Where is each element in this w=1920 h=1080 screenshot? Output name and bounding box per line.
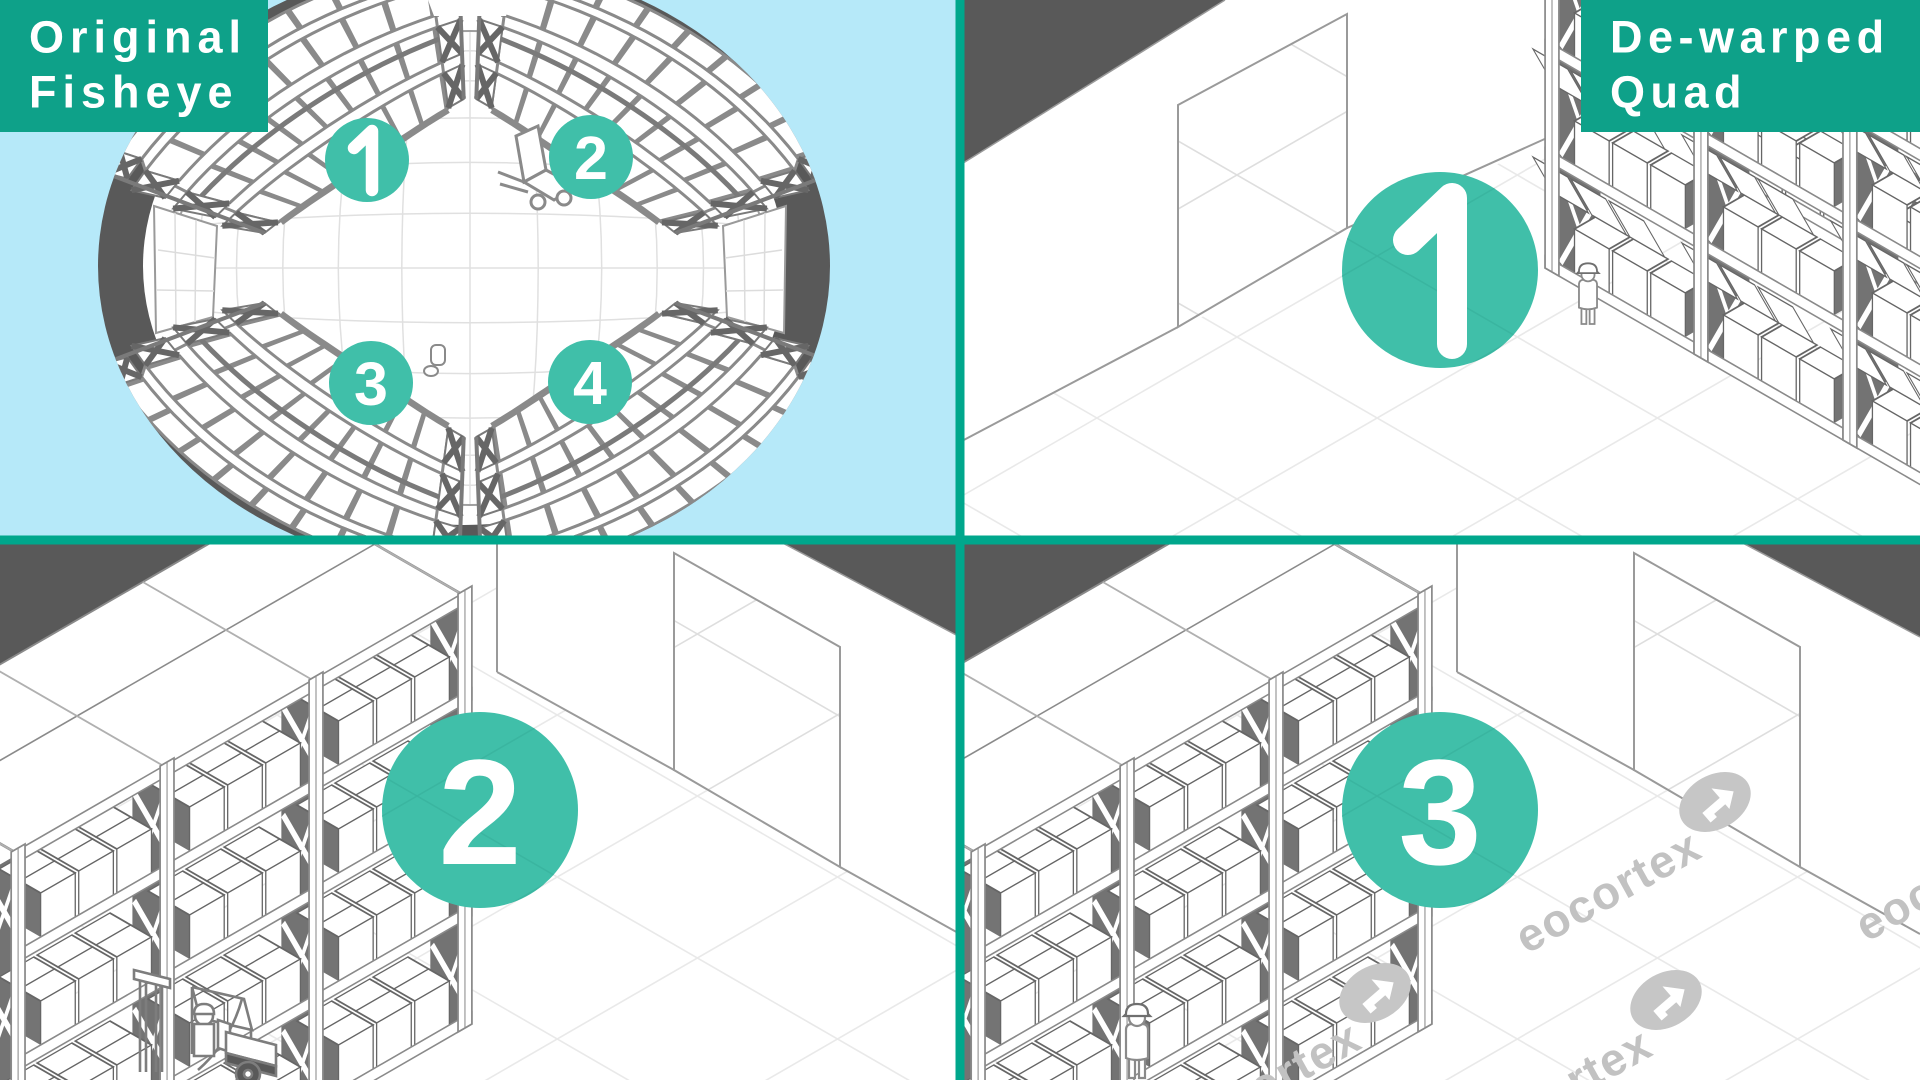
svg-text:De-warped: De-warped: [1610, 12, 1890, 63]
svg-text:2: 2: [574, 124, 608, 192]
svg-text:3: 3: [1398, 728, 1481, 896]
svg-text:3: 3: [354, 350, 388, 418]
svg-text:2: 2: [438, 728, 521, 896]
svg-text:Fisheye: Fisheye: [29, 67, 239, 118]
svg-text:Quad: Quad: [1610, 67, 1747, 118]
svg-text:Original: Original: [29, 12, 247, 63]
svg-text:4: 4: [573, 349, 607, 417]
